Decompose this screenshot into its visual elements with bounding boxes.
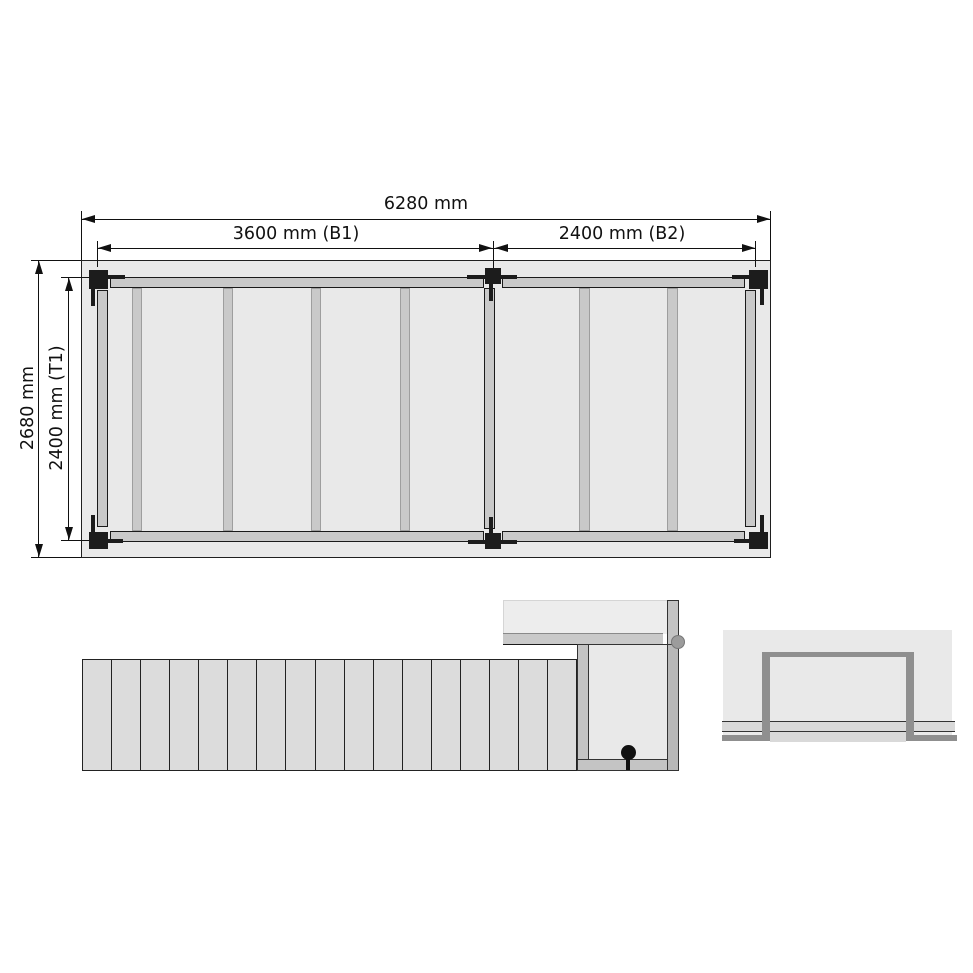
post-bottom-mid <box>485 533 501 549</box>
plank <box>228 660 257 770</box>
bracket-arm <box>489 517 493 533</box>
bracket-arm <box>91 289 95 306</box>
plank <box>461 660 490 770</box>
screw-head-dot <box>621 745 636 760</box>
bracket-arm <box>489 284 493 301</box>
dim-label-overall-width: 6280 mm <box>276 193 576 215</box>
section-footing-right <box>914 735 957 741</box>
plank <box>83 660 112 770</box>
dim-arrow <box>98 244 111 252</box>
bracket-arm <box>760 289 764 305</box>
post-top-left <box>89 270 108 289</box>
section-frame-post-left <box>762 652 770 741</box>
plank <box>316 660 345 770</box>
plank <box>141 660 170 770</box>
joist-b1-1 <box>132 288 142 531</box>
joist-b1-3 <box>311 288 321 531</box>
top-beam-b2 <box>502 277 745 288</box>
post-bottom-right <box>749 532 768 549</box>
dim-arrow <box>479 244 492 252</box>
plank <box>112 660 141 770</box>
dim-arrow <box>757 215 770 223</box>
bracket-arm <box>108 275 125 279</box>
bracket-arm <box>91 515 95 532</box>
bracket-arm <box>468 540 485 544</box>
left-edge-beam <box>97 290 108 527</box>
plank <box>548 660 576 770</box>
section-frame-top-bar <box>762 652 914 657</box>
post-bottom-left <box>89 532 108 549</box>
plank <box>199 660 228 770</box>
dim-label-overall-depth: 2680 mm <box>17 258 39 558</box>
dim-extension <box>97 241 98 267</box>
bracket-arm <box>467 275 485 279</box>
post-top-mid <box>485 268 501 284</box>
dim-line-bays <box>97 248 755 249</box>
dim-extension <box>81 211 82 260</box>
corner-section-left-rail <box>577 644 589 760</box>
joist-b1-4 <box>400 288 410 531</box>
plank <box>519 660 548 770</box>
dim-arrow <box>495 244 508 252</box>
section-ground-band <box>722 722 955 731</box>
bracket-arm <box>501 275 517 279</box>
section-footing-left <box>722 735 762 741</box>
technical-drawing-canvas: 6280 mm 3600 mm (B1) 2400 mm (B2) 2680 m… <box>0 0 973 973</box>
joist-b2-2 <box>667 288 678 531</box>
dim-arrow <box>82 215 95 223</box>
dim-line-inner-depth <box>68 277 69 541</box>
plank-row <box>82 659 577 771</box>
bracket-arm <box>760 515 764 532</box>
plank <box>432 660 461 770</box>
plank <box>257 660 286 770</box>
plank <box>374 660 403 770</box>
bracket-arm <box>501 540 517 544</box>
joist-b1-2 <box>223 288 233 531</box>
plank <box>403 660 432 770</box>
corner-section-interior <box>589 644 668 760</box>
corner-fastener-dot <box>671 635 685 649</box>
post-top-right <box>749 270 768 289</box>
mid-beam <box>484 288 495 529</box>
section-frame-post-right <box>906 652 914 741</box>
corner-post-lower <box>667 644 679 771</box>
dim-extension <box>493 241 494 268</box>
section-panel <box>723 630 952 735</box>
joist-b2-1 <box>579 288 590 531</box>
bottom-beam-b1 <box>110 531 484 542</box>
plank <box>170 660 199 770</box>
plank <box>345 660 374 770</box>
dim-label-bay1: 3600 mm (B1) <box>146 223 446 245</box>
bottom-beam-b2 <box>502 531 745 542</box>
plank <box>286 660 315 770</box>
dim-line-overall-width <box>81 219 771 220</box>
bracket-arm <box>734 539 749 543</box>
corner-return-panel <box>503 600 667 634</box>
dim-label-bay2: 2400 mm (B2) <box>472 223 772 245</box>
right-edge-beam <box>745 290 756 527</box>
bracket-arm <box>107 539 123 543</box>
dim-label-inner-depth: 2400 mm (T1) <box>46 258 68 558</box>
section-mid-band <box>770 732 906 742</box>
bracket-arm <box>732 275 749 279</box>
dim-arrow <box>742 244 755 252</box>
top-beam-b1 <box>110 277 484 288</box>
plank <box>490 660 519 770</box>
